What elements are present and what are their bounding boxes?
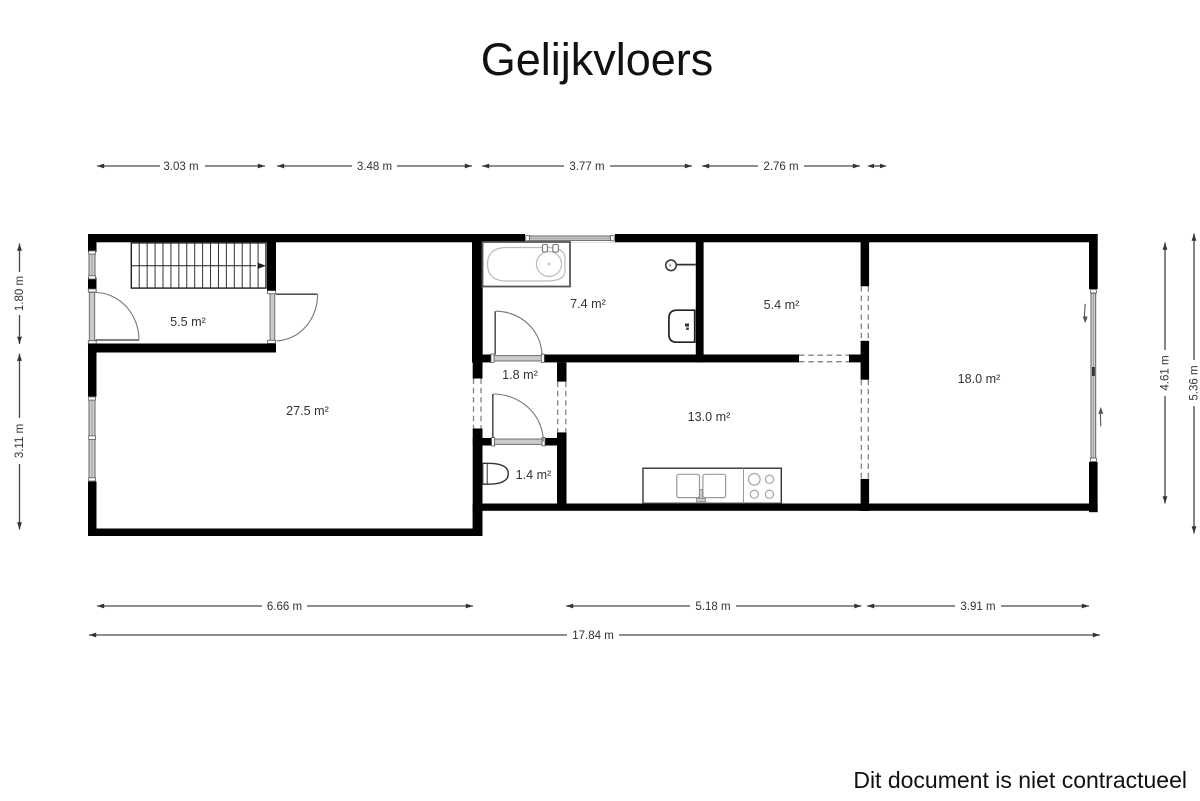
svg-text:5.5 m²: 5.5 m² (170, 315, 206, 329)
svg-text:Dit document is niet contractu: Dit document is niet contractueel (853, 767, 1187, 793)
svg-text:5.36 m: 5.36 m (1189, 365, 1200, 400)
svg-text:Gelijkvloers: Gelijkvloers (481, 34, 714, 85)
svg-text:6.66 m: 6.66 m (267, 601, 302, 613)
svg-text:13.0 m²: 13.0 m² (688, 410, 731, 424)
svg-text:7.4 m²: 7.4 m² (570, 297, 606, 311)
svg-text:4.61 m: 4.61 m (1160, 355, 1172, 390)
svg-text:3.91 m: 3.91 m (960, 601, 995, 613)
svg-text:3.03 m: 3.03 m (163, 161, 198, 173)
svg-text:18.0 m²: 18.0 m² (958, 372, 1001, 386)
svg-text:3.77 m: 3.77 m (569, 161, 604, 173)
svg-text:1.8 m²: 1.8 m² (502, 368, 538, 382)
svg-text:3.48 m: 3.48 m (357, 161, 392, 173)
svg-text:1.80 m: 1.80 m (14, 276, 26, 311)
svg-text:1.4 m²: 1.4 m² (516, 468, 552, 482)
svg-text:2.76 m: 2.76 m (763, 161, 798, 173)
svg-text:27.5 m²: 27.5 m² (286, 404, 329, 418)
svg-text:5.4 m²: 5.4 m² (764, 298, 800, 312)
svg-text:5.18 m: 5.18 m (695, 601, 730, 613)
svg-text:17.84 m: 17.84 m (572, 630, 614, 642)
svg-text:3.11 m: 3.11 m (14, 424, 26, 458)
